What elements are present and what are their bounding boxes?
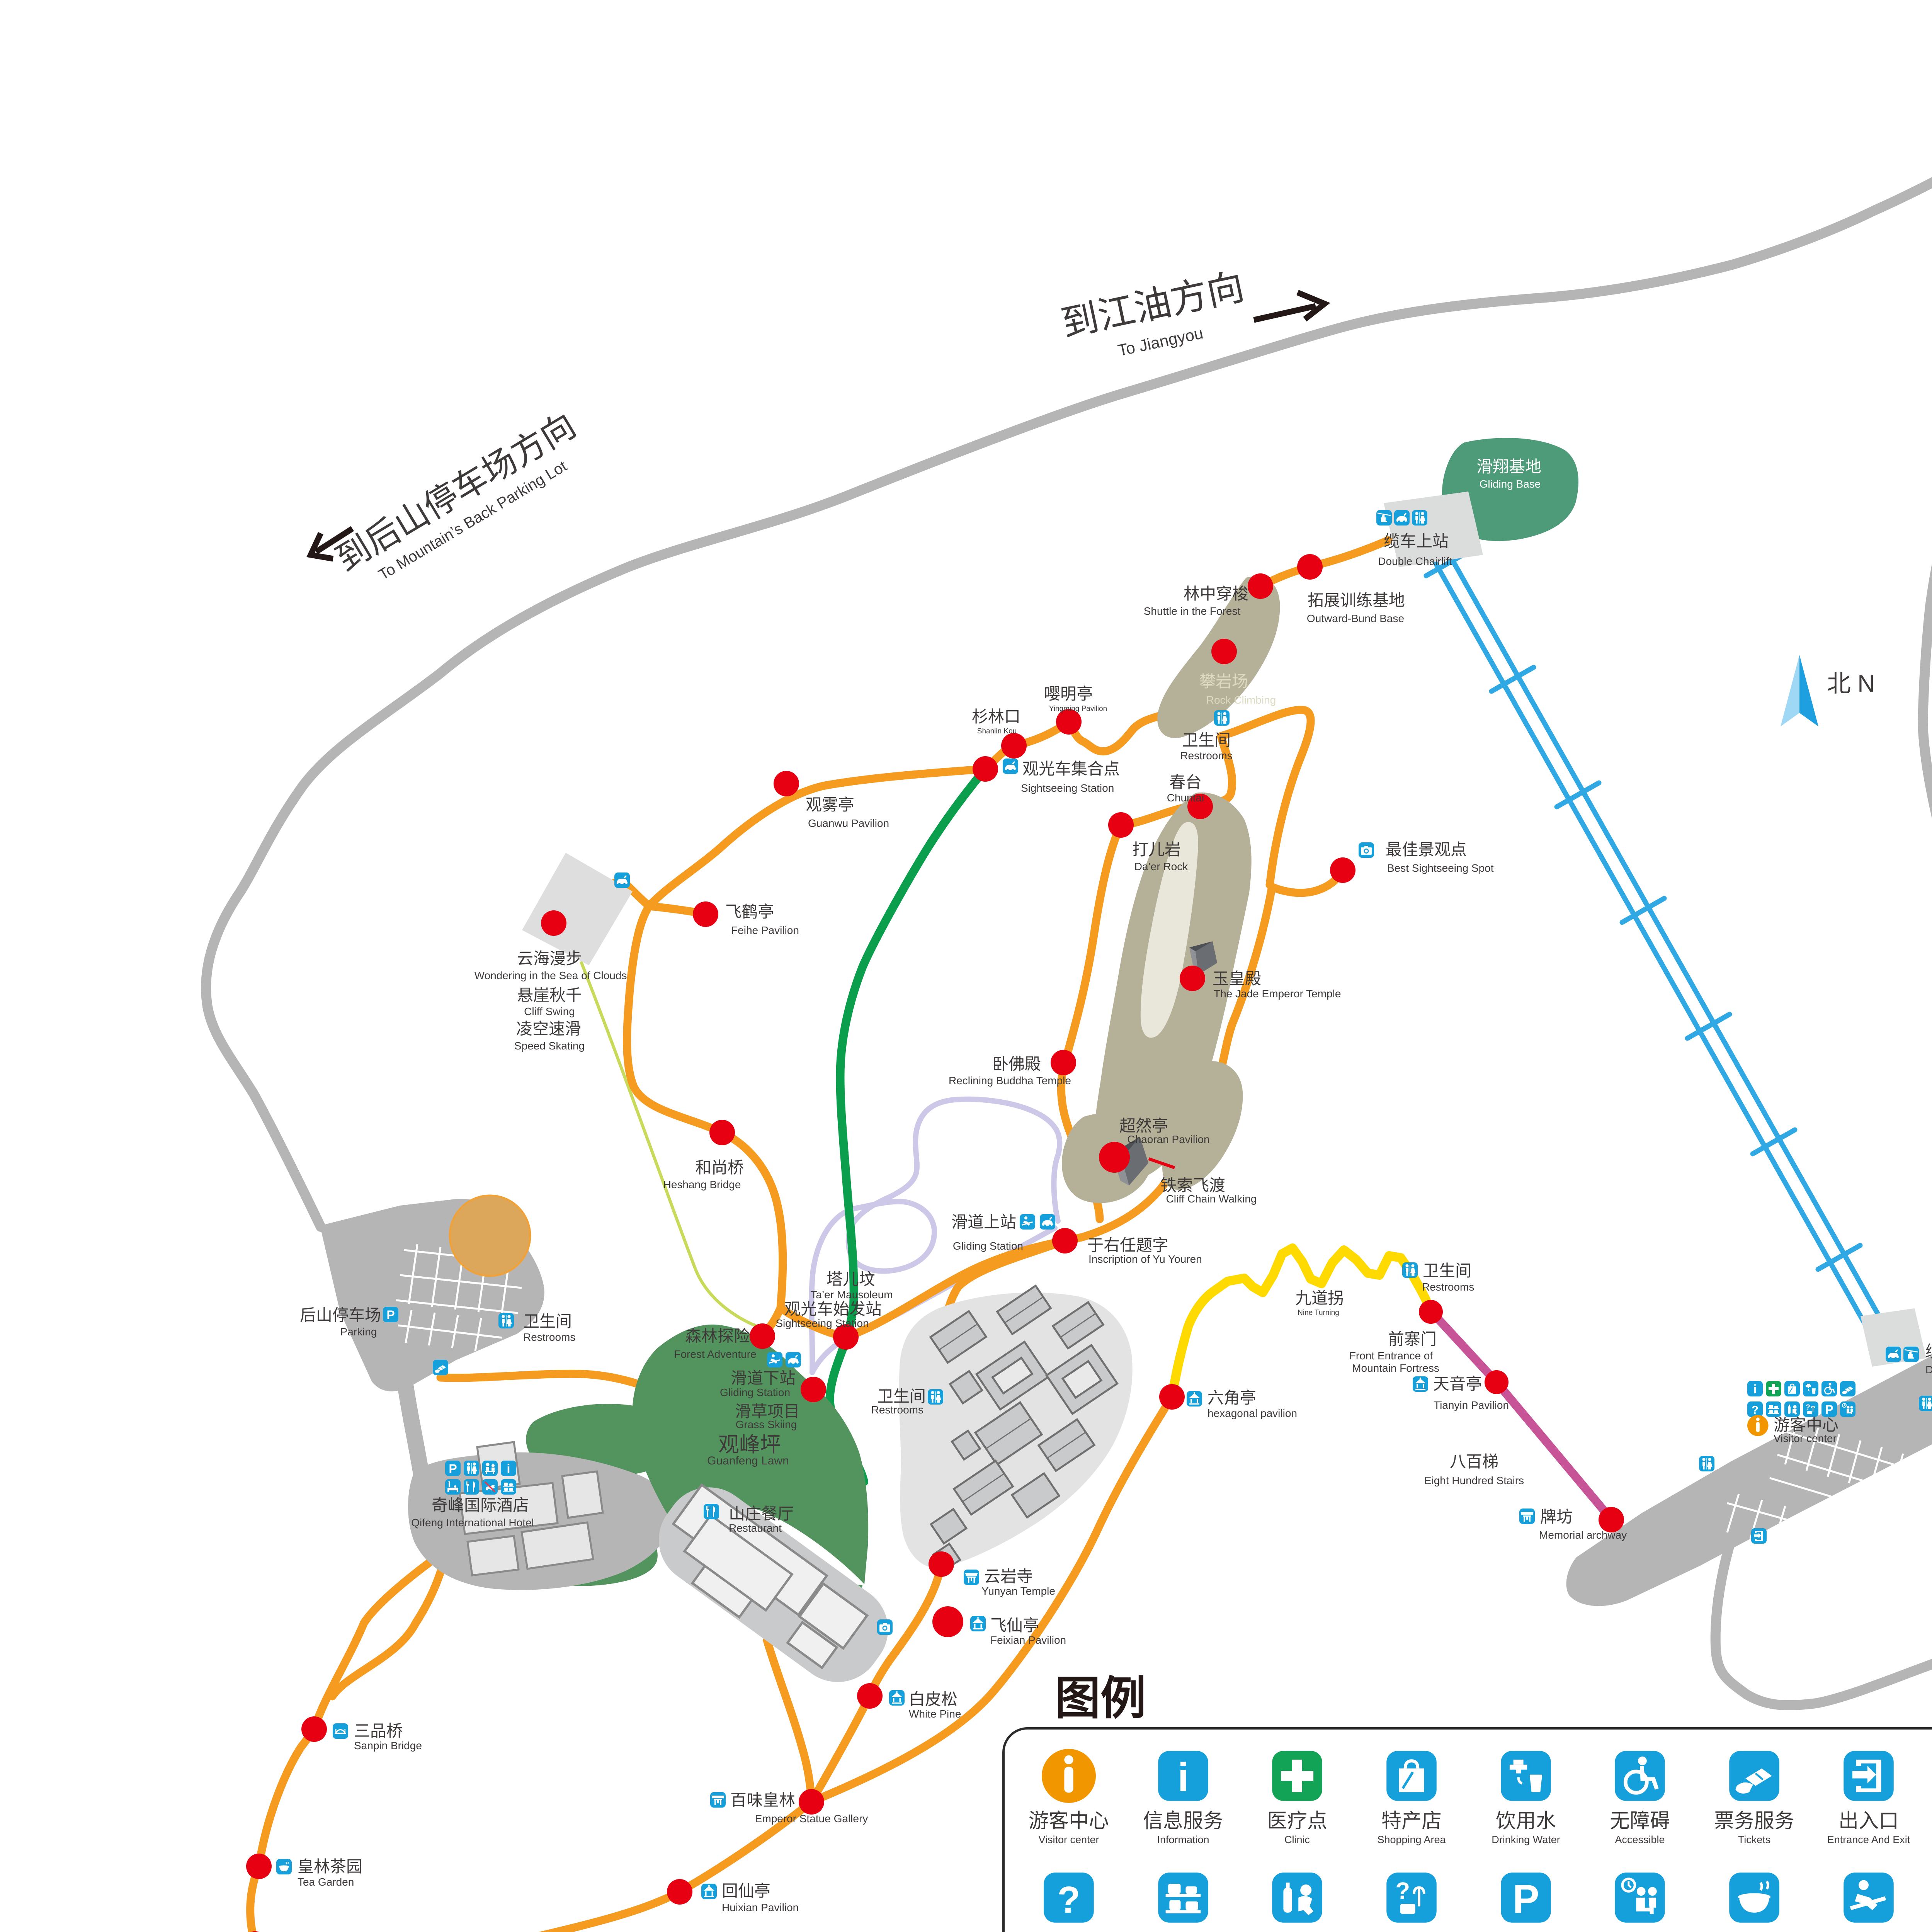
svg-text:Chuntai: Chuntai [1167,792,1204,804]
svg-text:Guanfeng Lawn: Guanfeng Lawn [707,1454,789,1467]
svg-text:Restrooms: Restrooms [871,1404,923,1416]
svg-text:Sightseeing Station: Sightseeing Station [1021,782,1114,794]
svg-text:Da’er Rock: Da’er Rock [1134,861,1188,872]
svg-text:滑草项目: 滑草项目 [735,1402,800,1420]
svg-text:Forest Adventure: Forest Adventure [674,1348,756,1360]
svg-text:飞鹤亭: 飞鹤亭 [725,903,774,921]
svg-text:卧佛殿: 卧佛殿 [992,1055,1041,1073]
svg-text:北 N: 北 N [1827,670,1875,697]
svg-text:玉皇殿: 玉皇殿 [1213,969,1261,988]
svg-text:观光车集合点: 观光车集合点 [1022,760,1120,778]
svg-text:Information: Information [1157,1834,1209,1845]
svg-text:牌坊: 牌坊 [1540,1508,1573,1526]
svg-text:卫生间: 卫生间 [1182,731,1231,749]
svg-text:出入口: 出入口 [1838,1810,1899,1832]
svg-text:观光车始发站: 观光车始发站 [784,1300,882,1318]
svg-text:Accessible: Accessible [1615,1834,1665,1845]
svg-text:Front Entrance of: Front Entrance of [1349,1350,1433,1362]
svg-text:森林探险: 森林探险 [685,1327,750,1345]
svg-text:Tianyin Pavilion: Tianyin Pavilion [1434,1399,1509,1411]
svg-text:Memorial archway: Memorial archway [1539,1529,1627,1541]
svg-text:春台: 春台 [1169,773,1202,791]
svg-text:Shopping Area: Shopping Area [1377,1834,1446,1845]
svg-text:观峰坪: 观峰坪 [718,1433,781,1456]
svg-text:皇林茶园: 皇林茶园 [298,1857,362,1876]
svg-text:Gliding Station: Gliding Station [720,1386,790,1398]
svg-text:Best Sightseeing Spot: Best Sightseeing Spot [1387,862,1494,874]
svg-text:游客中心: 游客中心 [1029,1810,1109,1832]
svg-text:Clinic: Clinic [1284,1834,1310,1845]
svg-text:滑道下站: 滑道下站 [731,1369,796,1387]
svg-text:Speed Skating: Speed Skating [514,1040,585,1052]
svg-text:超然亭: 超然亭 [1119,1117,1168,1135]
svg-text:Rock Climbing: Rock Climbing [1206,694,1276,706]
svg-text:Qifeng International Hotel: Qifeng International Hotel [411,1517,534,1529]
svg-text:Sanpin Bridge: Sanpin Bridge [354,1740,422,1752]
svg-text:Chaoran Pavilion: Chaoran Pavilion [1127,1133,1209,1145]
svg-text:攀岩场: 攀岩场 [1199,672,1248,690]
svg-text:云岩寺: 云岩寺 [984,1567,1033,1585]
svg-text:白皮松: 白皮松 [909,1690,957,1708]
svg-text:票务服务: 票务服务 [1714,1810,1794,1832]
svg-text:The Jade Emperor Temple: The Jade Emperor Temple [1214,988,1341,1000]
svg-text:林中穿梭: 林中穿梭 [1184,585,1248,603]
svg-text:Nine Turning: Nine Turning [1298,1309,1339,1317]
svg-text:Huixian Pavilion: Huixian Pavilion [722,1901,799,1913]
svg-text:滑道上站: 滑道上站 [951,1213,1016,1231]
svg-text:Yingming Pavilion: Yingming Pavilion [1049,705,1107,713]
svg-text:Guanwu Pavilion: Guanwu Pavilion [808,817,889,829]
svg-text:后山停车场: 后山停车场 [300,1306,381,1324]
svg-text:Heshang Bridge: Heshang Bridge [663,1179,741,1190]
svg-text:Restrooms: Restrooms [523,1331,575,1343]
svg-text:Restaurant: Restaurant [729,1522,782,1534]
svg-text:缆车下站: 缆车下站 [1925,1342,1932,1361]
svg-text:Feihe Pavilion: Feihe Pavilion [731,924,799,936]
svg-text:Shuttle in the Forest: Shuttle in the Forest [1144,605,1241,617]
svg-text:Gliding Base: Gliding Base [1480,478,1541,490]
svg-text:Cliff Chain Walking: Cliff Chain Walking [1166,1193,1257,1205]
svg-text:Restrooms: Restrooms [1180,750,1232,762]
svg-text:hexagonal pavilion: hexagonal pavilion [1207,1407,1297,1419]
svg-text:Double Chairlift: Double Chairlift [1378,555,1452,567]
svg-text:White Pine: White Pine [909,1708,961,1720]
svg-text:杉林口: 杉林口 [972,707,1020,726]
svg-text:Tickets: Tickets [1738,1834,1771,1845]
svg-text:Shanlin Kou: Shanlin Kou [977,727,1017,735]
svg-text:卫生间: 卫生间 [523,1312,572,1330]
svg-text:最佳景观点: 最佳景观点 [1386,840,1467,859]
svg-text:三品桥: 三品桥 [354,1722,403,1740]
svg-text:缆车上站: 缆车上站 [1384,532,1449,550]
svg-text:山庄餐厅: 山庄餐厅 [729,1505,794,1523]
svg-text:九道拐: 九道拐 [1295,1289,1344,1307]
svg-text:无障碍: 无障碍 [1610,1810,1670,1832]
svg-text:游客中心: 游客中心 [1774,1416,1838,1434]
svg-text:Sightseeing Station: Sightseeing Station [776,1317,869,1329]
svg-text:云海漫步: 云海漫步 [517,949,582,968]
svg-text:Reclining Buddha Temple: Reclining Buddha Temple [949,1075,1071,1087]
svg-text:Double Chairlift: Double Chairlift [1925,1364,1932,1376]
svg-text:Yunyan Temple: Yunyan Temple [981,1585,1055,1597]
svg-text:Eight Hundred Stairs: Eight Hundred Stairs [1424,1475,1524,1486]
svg-text:Grass Skiing: Grass Skiing [736,1418,797,1430]
svg-text:滑翔基地: 滑翔基地 [1476,457,1541,476]
svg-text:Emperor Statue Gallery: Emperor Statue Gallery [755,1813,868,1825]
svg-text:Visitor center: Visitor center [1774,1432,1837,1444]
svg-text:Tea Garden: Tea Garden [298,1876,354,1888]
svg-text:八百梯: 八百梯 [1450,1452,1498,1471]
svg-text:飞仙亭: 飞仙亭 [990,1616,1039,1634]
svg-text:拓展训练基地: 拓展训练基地 [1308,591,1405,609]
svg-text:六角亭: 六角亭 [1207,1389,1256,1407]
svg-text:Entrance And Exit: Entrance And Exit [1827,1834,1910,1845]
svg-text:和尚桥: 和尚桥 [695,1158,744,1177]
svg-text:Gliding Station: Gliding Station [953,1240,1023,1252]
svg-text:凌空速滑: 凌空速滑 [516,1020,581,1038]
svg-text:Ta’er Mausoleum: Ta’er Mausoleum [810,1289,893,1301]
svg-text:Parking: Parking [340,1326,377,1338]
svg-text:图例: 图例 [1055,1673,1146,1724]
svg-text:百味皇林: 百味皇林 [730,1791,795,1809]
svg-text:打儿岩: 打儿岩 [1132,840,1181,859]
svg-text:Mountain Fortress: Mountain Fortress [1352,1362,1439,1374]
svg-text:信息服务: 信息服务 [1143,1810,1223,1832]
svg-text:Restrooms: Restrooms [1422,1281,1474,1293]
svg-text:嘤明亭: 嘤明亭 [1044,685,1093,703]
svg-text:饮用水: 饮用水 [1496,1810,1556,1832]
svg-text:悬崖秋千: 悬崖秋千 [517,986,582,1004]
svg-text:奇峰国际酒店: 奇峰国际酒店 [432,1496,529,1514]
svg-text:于右任题字: 于右任题字 [1087,1236,1168,1254]
svg-text:Wondering in the Sea of Clouds: Wondering in the Sea of Clouds [474,969,627,981]
svg-text:医疗点: 医疗点 [1267,1810,1327,1832]
svg-text:Feixian Pavilion: Feixian Pavilion [990,1634,1066,1646]
svg-text:塔儿坟: 塔儿坟 [827,1270,875,1288]
svg-text:Drinking Water: Drinking Water [1492,1834,1560,1845]
svg-text:Cliff Swing: Cliff Swing [524,1005,575,1017]
svg-text:铁索飞渡: 铁索飞渡 [1160,1176,1225,1194]
svg-text:天音亭: 天音亭 [1433,1375,1482,1393]
svg-text:Outward-Bund Base: Outward-Bund Base [1307,612,1404,624]
svg-text:Visitor center: Visitor center [1038,1834,1099,1845]
svg-text:前寨门: 前寨门 [1388,1330,1437,1348]
svg-text:卫生间: 卫生间 [877,1387,926,1405]
svg-text:Inscription of Yu Youren: Inscription of Yu Youren [1088,1253,1202,1265]
svg-text:回仙亭: 回仙亭 [722,1882,770,1900]
svg-text:观雾亭: 观雾亭 [806,796,854,814]
svg-text:特产店: 特产店 [1381,1810,1442,1832]
svg-text:卫生间: 卫生间 [1423,1262,1471,1280]
